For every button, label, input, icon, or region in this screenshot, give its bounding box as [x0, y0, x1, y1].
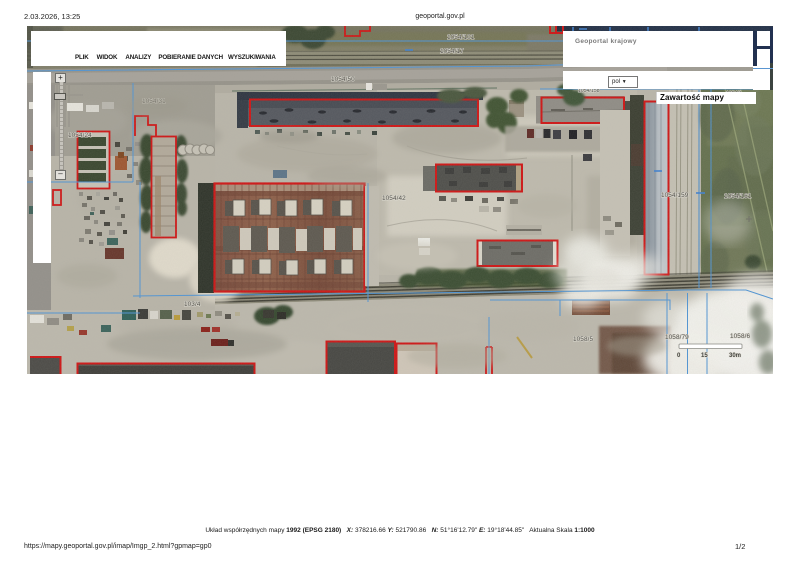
svg-text:103/4: 103/4: [184, 301, 201, 308]
svg-text:1054/50: 1054/50: [331, 76, 355, 83]
svg-text:1054/42: 1054/42: [382, 195, 406, 202]
svg-text:30m: 30m: [729, 353, 741, 359]
svg-text:1058/5: 1058/5: [573, 336, 593, 343]
svg-text:1058/6: 1058/6: [730, 333, 750, 340]
svg-text:1054/159: 1054/159: [661, 192, 689, 199]
svg-text:15: 15: [701, 353, 708, 359]
svg-text:1054/161: 1054/161: [724, 193, 752, 200]
svg-text:1058/79: 1058/79: [665, 334, 689, 341]
svg-text:1054/17: 1054/17: [440, 48, 464, 55]
svg-text:1054/24: 1054/24: [68, 132, 92, 139]
svg-text:1054/101: 1054/101: [447, 34, 475, 41]
